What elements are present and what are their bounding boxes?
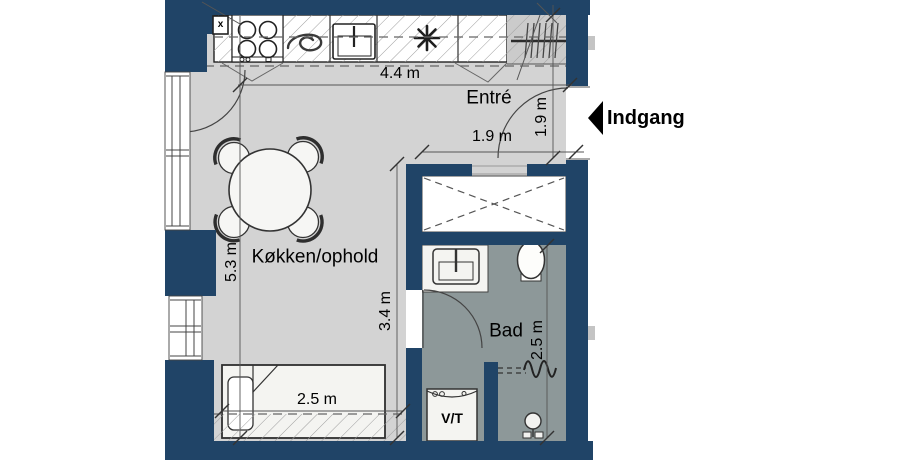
- room-label-entry: Entré: [466, 89, 511, 108]
- room-label-bath: Bad: [489, 322, 523, 341]
- dim-entry-depth: 1.9 m: [534, 97, 550, 137]
- entrance-arrow-icon: [588, 101, 603, 135]
- dim-entry-width: 1.9 m: [472, 129, 512, 145]
- room-label-kitchen-living: Køkken/ophold: [252, 248, 379, 267]
- toilet-icon: [518, 242, 545, 282]
- dining-set: [215, 138, 322, 241]
- fridge-asterisk-icon: [415, 26, 439, 50]
- closet: [422, 176, 566, 232]
- kitchen-sink-icon: [333, 24, 375, 59]
- dim-bed-length: 2.5 m: [297, 392, 337, 408]
- dining-table: [229, 149, 311, 231]
- floor-plan: Køkken/ophold Entré Bad Indgang V/T x 4.…: [0, 0, 905, 460]
- dim-room-depth: 5.3 m: [224, 242, 240, 282]
- neighbour-wall-stubs: [588, 36, 595, 340]
- entrance-label: Indgang: [607, 108, 685, 128]
- floor-drain-icon: [523, 413, 543, 438]
- electrical-panel-label: x: [218, 20, 224, 30]
- floor-plan-drawing: [0, 0, 905, 460]
- dim-inner-depth: 3.4 m: [378, 291, 394, 331]
- window: [165, 72, 190, 230]
- dim-kitchen-width: 4.4 m: [380, 66, 420, 82]
- window: [169, 296, 202, 360]
- dim-bath-depth: 2.5 m: [530, 320, 546, 360]
- washbasin-icon: [422, 245, 488, 292]
- washer-dryer-label: V/T: [441, 411, 463, 425]
